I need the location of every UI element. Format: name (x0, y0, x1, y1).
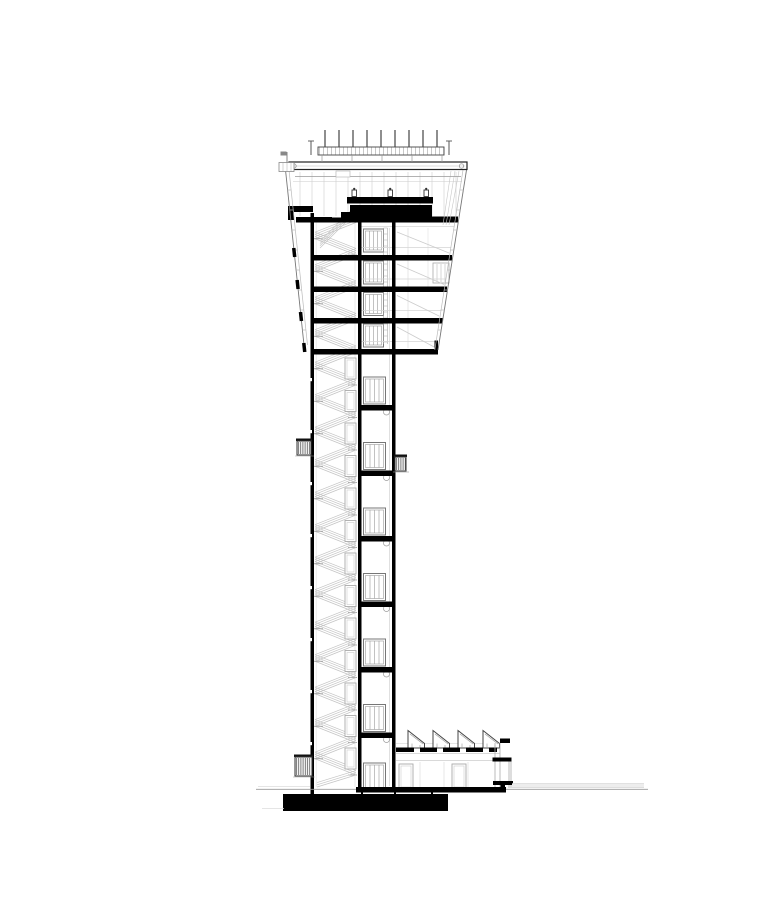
roof-hatch (336, 171, 350, 177)
small-mast-flag (281, 152, 287, 156)
drawing-sheet (0, 0, 778, 900)
shaft-right-wall (392, 222, 396, 790)
cab-raised-floor (358, 205, 432, 223)
annex-doors (399, 764, 466, 789)
eave-equipment-box (279, 163, 294, 172)
ground-floor-slab (356, 787, 506, 793)
annex-roof-slab (396, 748, 497, 753)
console-monitors (352, 188, 429, 197)
core-wall (358, 222, 362, 790)
cab-floor-and-consoles (288, 188, 458, 223)
ground-and-foundation (256, 784, 648, 812)
foundation-slab (283, 794, 448, 811)
cab-floor-right (432, 217, 458, 223)
control-console (347, 197, 433, 204)
facade-left-inner (289, 170, 308, 345)
annex-building (396, 731, 513, 791)
tower-section-drawing (0, 0, 778, 900)
shaft-left-wall (311, 213, 315, 796)
elevator-doors (364, 229, 386, 790)
paving-strip (512, 784, 644, 788)
antenna-array (308, 130, 452, 162)
sawtooth-roof-monitors (408, 731, 500, 749)
right-wall-cap (500, 739, 510, 744)
footing-cap (493, 781, 513, 785)
cab-floor-left (296, 217, 332, 223)
right-lower-cap (493, 758, 512, 762)
